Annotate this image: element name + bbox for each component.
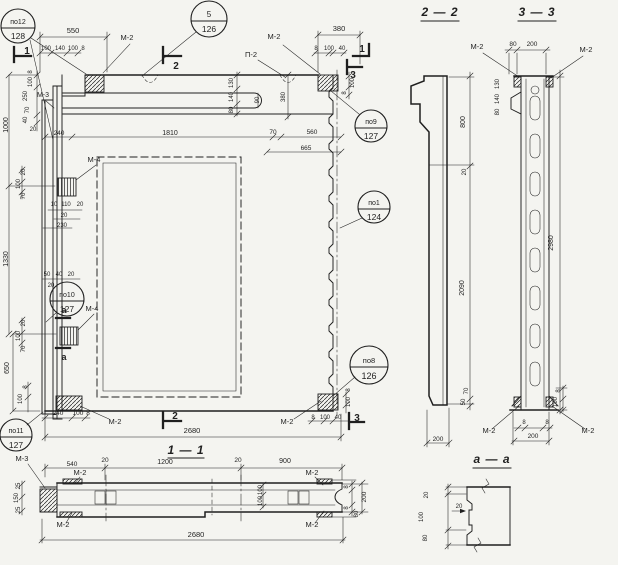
plan-dimensions bbox=[6, 31, 363, 441]
dim-label: 100 bbox=[258, 495, 264, 506]
dim-label: 1330 bbox=[3, 251, 10, 267]
dim-label: 8 bbox=[556, 389, 562, 393]
dim-label: 110 bbox=[61, 202, 71, 208]
voids-1-1 bbox=[95, 491, 309, 504]
dim-label: 50 bbox=[44, 272, 51, 278]
dim-label: 80 bbox=[229, 106, 235, 113]
dim-label: 2090 bbox=[459, 280, 466, 296]
marker-label: М-2 bbox=[471, 42, 484, 51]
section-2-2-view: 2 — 2 bbox=[411, 5, 474, 447]
anchor-m3 bbox=[40, 489, 57, 512]
dim-label: 25 bbox=[16, 482, 22, 489]
marker-label: М-2 bbox=[306, 468, 319, 477]
dim-label: 50 bbox=[461, 398, 467, 405]
dim-label: 40 bbox=[23, 116, 29, 123]
dim-label: 100 bbox=[324, 46, 335, 52]
section-cut-label: 3 bbox=[354, 413, 360, 424]
dim-label: 8 bbox=[346, 388, 352, 392]
lifting-loop-arc bbox=[142, 75, 296, 83]
dim-label: 1000 bbox=[3, 117, 10, 133]
section-a-a-view: а — а bbox=[445, 452, 511, 552]
dim-label: 8 bbox=[522, 420, 526, 426]
callout-bottom: 126 bbox=[202, 24, 216, 34]
opening-inner bbox=[103, 163, 236, 391]
dim-label: 20 bbox=[48, 283, 55, 289]
dim-label: 900 bbox=[279, 458, 291, 465]
callout-po8-126: по8 126 bbox=[333, 346, 388, 396]
dim-label: 70 bbox=[21, 345, 27, 352]
section-title-a-a: а — а bbox=[473, 452, 510, 466]
dim-label: 140 bbox=[55, 46, 66, 52]
plate-bottom-right bbox=[318, 394, 338, 410]
section-cut-label: 1 bbox=[24, 46, 30, 57]
dim-label: 100 bbox=[18, 393, 24, 404]
dim-label: 1200 bbox=[157, 459, 173, 466]
callout-bottom: 127 bbox=[9, 440, 23, 450]
dim-label: 130 bbox=[495, 78, 501, 89]
marker-label: М-2 bbox=[268, 32, 281, 41]
dim-label: 200 bbox=[361, 491, 368, 502]
dim-label: 20 bbox=[61, 213, 68, 219]
section-cut-label: 2 bbox=[173, 61, 179, 72]
dim-label: 240 bbox=[53, 410, 64, 417]
dim-label: 2680 bbox=[184, 426, 201, 435]
callout-top: по11 bbox=[9, 428, 24, 435]
dim-label: 100 bbox=[41, 46, 52, 52]
opening-dashed bbox=[97, 157, 241, 397]
marker-label: М-3 bbox=[16, 454, 29, 463]
plate-1-1-tl bbox=[63, 479, 82, 484]
marker-label: М-3 bbox=[37, 92, 49, 99]
marker-label: М-2 bbox=[121, 33, 134, 42]
dim-label: 70 bbox=[269, 129, 277, 136]
dim-label: 200 bbox=[433, 436, 444, 443]
dim-label: 650 bbox=[4, 362, 11, 374]
callout-top: по12 bbox=[10, 19, 26, 26]
dim-label: 540 bbox=[67, 461, 78, 468]
marker-label: М-2 bbox=[483, 426, 496, 435]
dim-label: 230 bbox=[57, 223, 68, 229]
dim-label: 8 bbox=[344, 485, 350, 489]
dim-label: 70 bbox=[21, 192, 27, 199]
voids-3-3 bbox=[530, 86, 540, 386]
dim-label: 200 bbox=[527, 41, 538, 48]
dim-label: 70 bbox=[464, 387, 470, 394]
embed-plates bbox=[56, 75, 338, 410]
dim-label: 8 bbox=[28, 70, 34, 74]
plate-m4-upper bbox=[58, 178, 76, 196]
engineering-drawing: 1 — 1 2 — 2 bbox=[0, 0, 618, 565]
callout-top: по10 bbox=[59, 292, 75, 299]
dim-label: 240 bbox=[54, 130, 65, 137]
dim-label: 2680 bbox=[188, 530, 205, 539]
dim-label: 20 bbox=[462, 168, 468, 175]
dims-3-3 bbox=[483, 47, 585, 445]
keyed-edge bbox=[329, 75, 333, 411]
callout-5-126: 5 126 bbox=[142, 1, 227, 76]
dim-label: 100 bbox=[68, 46, 79, 52]
dim-label: 100 bbox=[346, 396, 352, 407]
callout-bottom: 126 bbox=[361, 371, 376, 381]
dim-label: 90 bbox=[255, 96, 261, 103]
dim-label: 80 bbox=[423, 534, 429, 541]
plate-3-3-br bbox=[546, 397, 553, 407]
dim-label: 100 bbox=[16, 178, 22, 189]
callout-top: 5 bbox=[207, 10, 212, 19]
dim-label: 20 bbox=[101, 457, 109, 464]
dim-label: 8 bbox=[81, 46, 85, 52]
plate-3-3-tl bbox=[514, 77, 521, 87]
section-title-1-1: 1 — 1 bbox=[167, 443, 204, 457]
dim-label: 380 bbox=[333, 24, 346, 33]
callout-bottom: 124 bbox=[367, 212, 381, 222]
callout-po11-127: по11 127 bbox=[0, 412, 43, 451]
section-cut-marks bbox=[14, 44, 369, 429]
dim-label: 20 bbox=[21, 319, 27, 326]
marker-label: М-2 bbox=[281, 417, 294, 426]
marker-label: М-2 bbox=[57, 520, 70, 529]
plate-3-3-tr bbox=[546, 77, 553, 87]
dim-label: 100 bbox=[16, 330, 22, 341]
dim-label: 665 bbox=[301, 145, 312, 152]
dim-label: 100 bbox=[73, 410, 84, 417]
dim-label: 560 bbox=[307, 129, 318, 136]
dim-label: 20 bbox=[424, 491, 430, 498]
dim-label: 550 bbox=[67, 26, 80, 35]
plate-3-3-bl bbox=[514, 397, 521, 407]
section-title-3-3: 3 — 3 bbox=[518, 5, 555, 19]
marker-label: М-2 bbox=[74, 468, 87, 477]
dim-label: 70 bbox=[25, 106, 31, 113]
callout-top: по1 bbox=[368, 200, 380, 207]
dim-label: 150 bbox=[14, 492, 20, 503]
marker-label: М-2 bbox=[580, 45, 593, 54]
plate-m4-lower bbox=[60, 327, 78, 345]
dim-label: 40 bbox=[335, 415, 342, 421]
callout-po1-124: по1 124 bbox=[340, 191, 390, 228]
marker-label: М-2 bbox=[582, 426, 595, 435]
plate-bottom-left bbox=[56, 396, 82, 410]
break-marks bbox=[474, 479, 489, 552]
dim-label: 100 bbox=[258, 484, 264, 495]
dim-label: 8 bbox=[344, 506, 350, 510]
dim-label: 80 bbox=[509, 41, 517, 48]
plate-1-1-br bbox=[317, 512, 332, 517]
dim-label: 20 bbox=[234, 457, 242, 464]
section-cut-label: 2 bbox=[172, 411, 178, 422]
panel-outline bbox=[42, 70, 337, 419]
dim-label: 8 bbox=[86, 410, 90, 417]
drawing-sheet: 1 — 1 2 — 2 bbox=[0, 0, 618, 565]
callout-bottom: 128 bbox=[11, 31, 25, 41]
dim-label: 20 bbox=[68, 272, 75, 278]
console-wedge bbox=[511, 92, 521, 114]
dim-label: 380 bbox=[281, 91, 287, 102]
dim-label: 100 bbox=[553, 396, 559, 407]
dim-label: 10 bbox=[51, 202, 58, 208]
dim-label: 250 bbox=[23, 90, 29, 101]
dim-label: 40 bbox=[339, 46, 346, 52]
dim-label: 2980 bbox=[548, 235, 555, 251]
plate-top-left bbox=[85, 75, 104, 92]
dim-label: 130 bbox=[229, 77, 235, 88]
dim-label: 100 bbox=[28, 76, 34, 87]
marker-label: М-2 bbox=[109, 417, 122, 426]
dim-label: 100 bbox=[320, 415, 331, 421]
dim-label: 800 bbox=[460, 116, 467, 128]
marker-label: М-4 bbox=[86, 304, 99, 313]
dim-label: 8 bbox=[342, 91, 348, 95]
top-rib bbox=[63, 93, 333, 114]
marker-label: М-4 bbox=[88, 155, 101, 164]
dim-label: 140 bbox=[229, 91, 235, 102]
section-title-2-2: 2 — 2 bbox=[420, 5, 458, 19]
dim-label: 25 bbox=[16, 506, 22, 513]
dim-label: 100 bbox=[350, 77, 356, 88]
dim-label: 20 bbox=[21, 168, 27, 175]
marker-label: М-2 bbox=[306, 520, 319, 529]
edge-groove-profile bbox=[467, 487, 472, 545]
dim-label: 200 bbox=[528, 433, 539, 440]
dim-label: 140 bbox=[495, 93, 501, 104]
section-cut-label: 1 bbox=[359, 44, 365, 55]
plate-top-right bbox=[318, 75, 338, 91]
marker-label: П-2 bbox=[245, 50, 257, 59]
dim-label: 80 bbox=[354, 510, 360, 517]
dim-label: 1810 bbox=[162, 130, 178, 137]
callout-top: по9 bbox=[365, 119, 377, 126]
dim-label: 20 bbox=[456, 504, 463, 510]
dim-label: 40 bbox=[56, 272, 63, 278]
dims-a-a bbox=[445, 484, 466, 549]
dim-label: 80 bbox=[495, 108, 501, 115]
dim-label: 20 bbox=[77, 202, 84, 208]
section-3-3-view: 3 — 3 bbox=[483, 5, 585, 445]
callout-bottom: 127 bbox=[364, 131, 378, 141]
section-cut-label: а bbox=[61, 352, 67, 362]
callout-po9-127: по9 127 bbox=[331, 91, 387, 142]
dim-label: 20 bbox=[30, 127, 37, 133]
dim-label: 100 bbox=[419, 511, 425, 522]
callout-top: по8 bbox=[363, 356, 375, 365]
